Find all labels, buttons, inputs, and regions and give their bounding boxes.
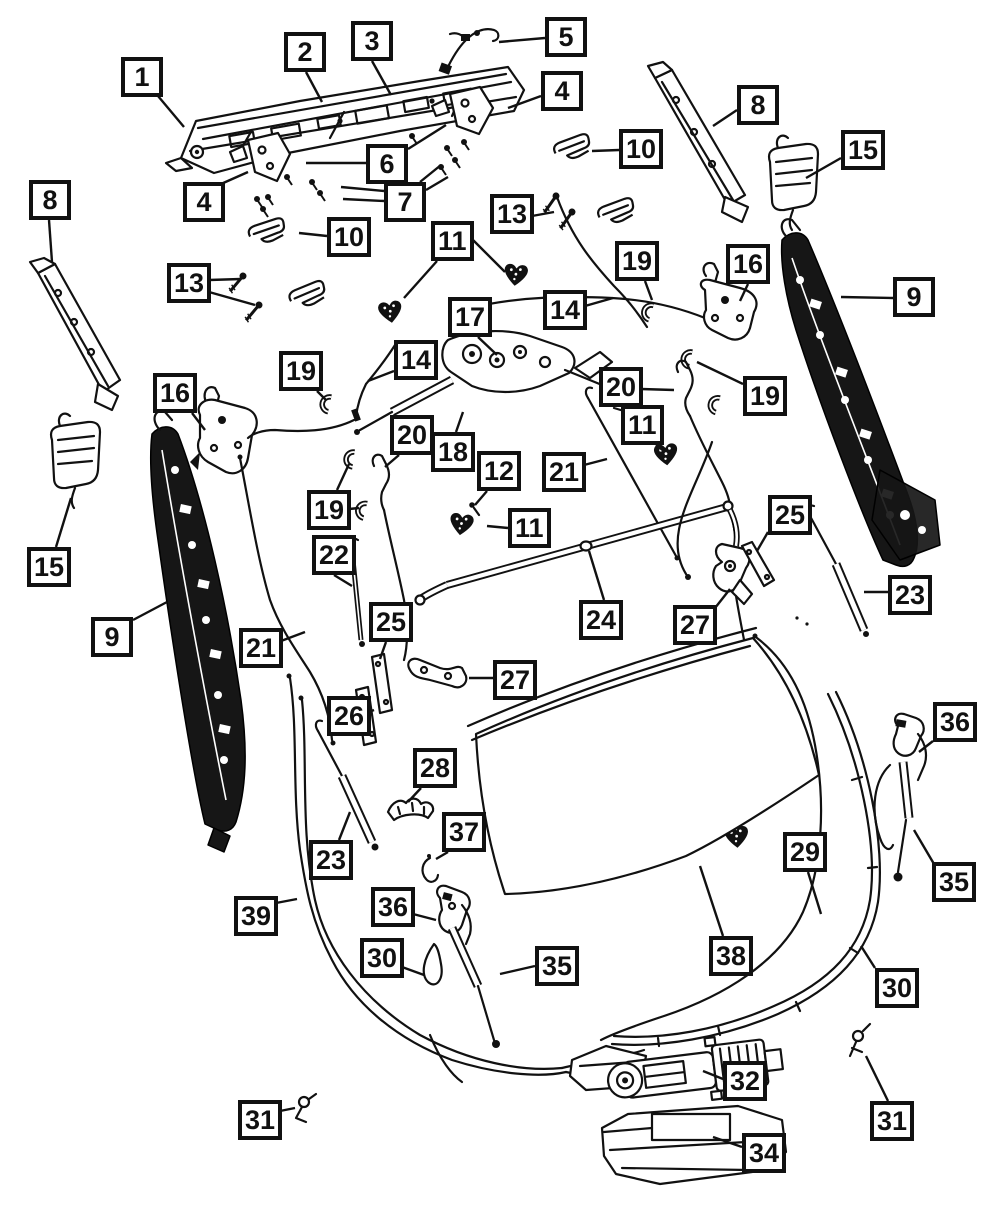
- callout-9[interactable]: 9: [893, 277, 935, 317]
- callout-15[interactable]: 15: [841, 130, 885, 170]
- callout-14[interactable]: 14: [543, 290, 587, 330]
- callout-18[interactable]: 18: [431, 432, 475, 472]
- callout-19[interactable]: 19: [743, 376, 787, 416]
- parts-diagram-canvas: 1235481015647138101113191691417141916201…: [0, 0, 1000, 1214]
- callout-4[interactable]: 4: [541, 71, 583, 111]
- callout-36[interactable]: 36: [933, 702, 977, 742]
- callout-11[interactable]: 11: [508, 508, 551, 548]
- callout-10[interactable]: 10: [327, 217, 371, 257]
- callout-19[interactable]: 19: [615, 241, 659, 281]
- callout-3[interactable]: 3: [351, 21, 393, 61]
- callout-14[interactable]: 14: [394, 340, 438, 380]
- callout-25[interactable]: 25: [369, 602, 413, 642]
- callout-4[interactable]: 4: [183, 182, 225, 222]
- callout-34[interactable]: 34: [742, 1133, 786, 1173]
- callout-19[interactable]: 19: [307, 490, 351, 530]
- callout-16[interactable]: 16: [726, 244, 770, 284]
- callout-6[interactable]: 6: [366, 144, 408, 184]
- callout-2[interactable]: 2: [284, 32, 326, 72]
- callout-39[interactable]: 39: [234, 896, 278, 936]
- callout-16[interactable]: 16: [153, 373, 197, 413]
- callout-26[interactable]: 26: [327, 696, 371, 736]
- callout-21[interactable]: 21: [239, 628, 283, 668]
- callout-36[interactable]: 36: [371, 887, 415, 927]
- callout-15[interactable]: 15: [27, 547, 71, 587]
- callout-27[interactable]: 27: [493, 660, 537, 700]
- callout-31[interactable]: 31: [238, 1100, 282, 1140]
- callout-8[interactable]: 8: [29, 180, 71, 220]
- callout-31[interactable]: 31: [870, 1101, 914, 1141]
- callout-35[interactable]: 35: [932, 862, 976, 902]
- callout-28[interactable]: 28: [413, 748, 457, 788]
- callout-19[interactable]: 19: [279, 351, 323, 391]
- callout-30[interactable]: 30: [360, 938, 404, 978]
- callout-17[interactable]: 17: [448, 297, 492, 337]
- callout-27[interactable]: 27: [673, 605, 717, 645]
- callout-30[interactable]: 30: [875, 968, 919, 1008]
- callout-5[interactable]: 5: [545, 17, 587, 57]
- callout-20[interactable]: 20: [599, 367, 643, 407]
- callout-7[interactable]: 7: [384, 182, 426, 222]
- callout-37[interactable]: 37: [442, 812, 486, 852]
- callout-25[interactable]: 25: [768, 495, 812, 535]
- callout-20[interactable]: 20: [390, 415, 434, 455]
- callout-38[interactable]: 38: [709, 936, 753, 976]
- callout-8[interactable]: 8: [737, 85, 779, 125]
- callout-9[interactable]: 9: [91, 617, 133, 657]
- callout-23[interactable]: 23: [888, 575, 932, 615]
- callout-23[interactable]: 23: [309, 840, 353, 880]
- callout-1[interactable]: 1: [121, 57, 163, 97]
- callout-13[interactable]: 13: [490, 194, 534, 234]
- callout-12[interactable]: 12: [477, 451, 521, 491]
- callout-32[interactable]: 32: [723, 1061, 767, 1101]
- callout-11[interactable]: 11: [431, 221, 474, 261]
- callout-10[interactable]: 10: [619, 129, 663, 169]
- callout-21[interactable]: 21: [542, 452, 586, 492]
- callout-29[interactable]: 29: [783, 832, 827, 872]
- callout-11[interactable]: 11: [621, 405, 664, 445]
- callout-35[interactable]: 35: [535, 946, 579, 986]
- callout-24[interactable]: 24: [579, 600, 623, 640]
- callout-22[interactable]: 22: [312, 535, 356, 575]
- callout-13[interactable]: 13: [167, 263, 211, 303]
- callout-layer: 1235481015647138101113191691417141916201…: [0, 0, 1000, 1214]
